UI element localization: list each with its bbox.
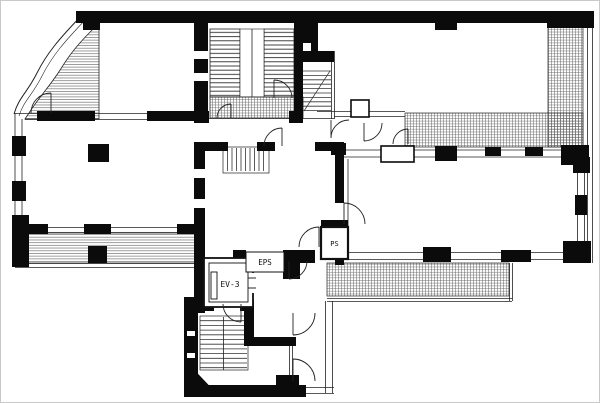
- floor-plan-sheet: EV-3 EPS PS: [0, 0, 600, 403]
- ps-label: PS: [330, 240, 338, 248]
- balcony-bottom-right: [327, 263, 513, 302]
- eps-shaft: EPS: [246, 252, 284, 272]
- eps-label: EPS: [258, 258, 272, 267]
- elevator-door-gap: [249, 273, 255, 293]
- elevator-label: EV-3: [220, 280, 239, 289]
- stairwell-main-top: [194, 29, 303, 119]
- stairwell-bottom: [200, 316, 248, 370]
- floor-plan-svg: EV-3 EPS PS: [1, 1, 600, 403]
- ps-shaft: PS: [321, 220, 348, 259]
- duct-box-corridor: [351, 100, 369, 117]
- window-walls: [15, 18, 593, 394]
- closet-box-middle: [381, 146, 414, 162]
- corridor-balcony-middle: [405, 113, 583, 147]
